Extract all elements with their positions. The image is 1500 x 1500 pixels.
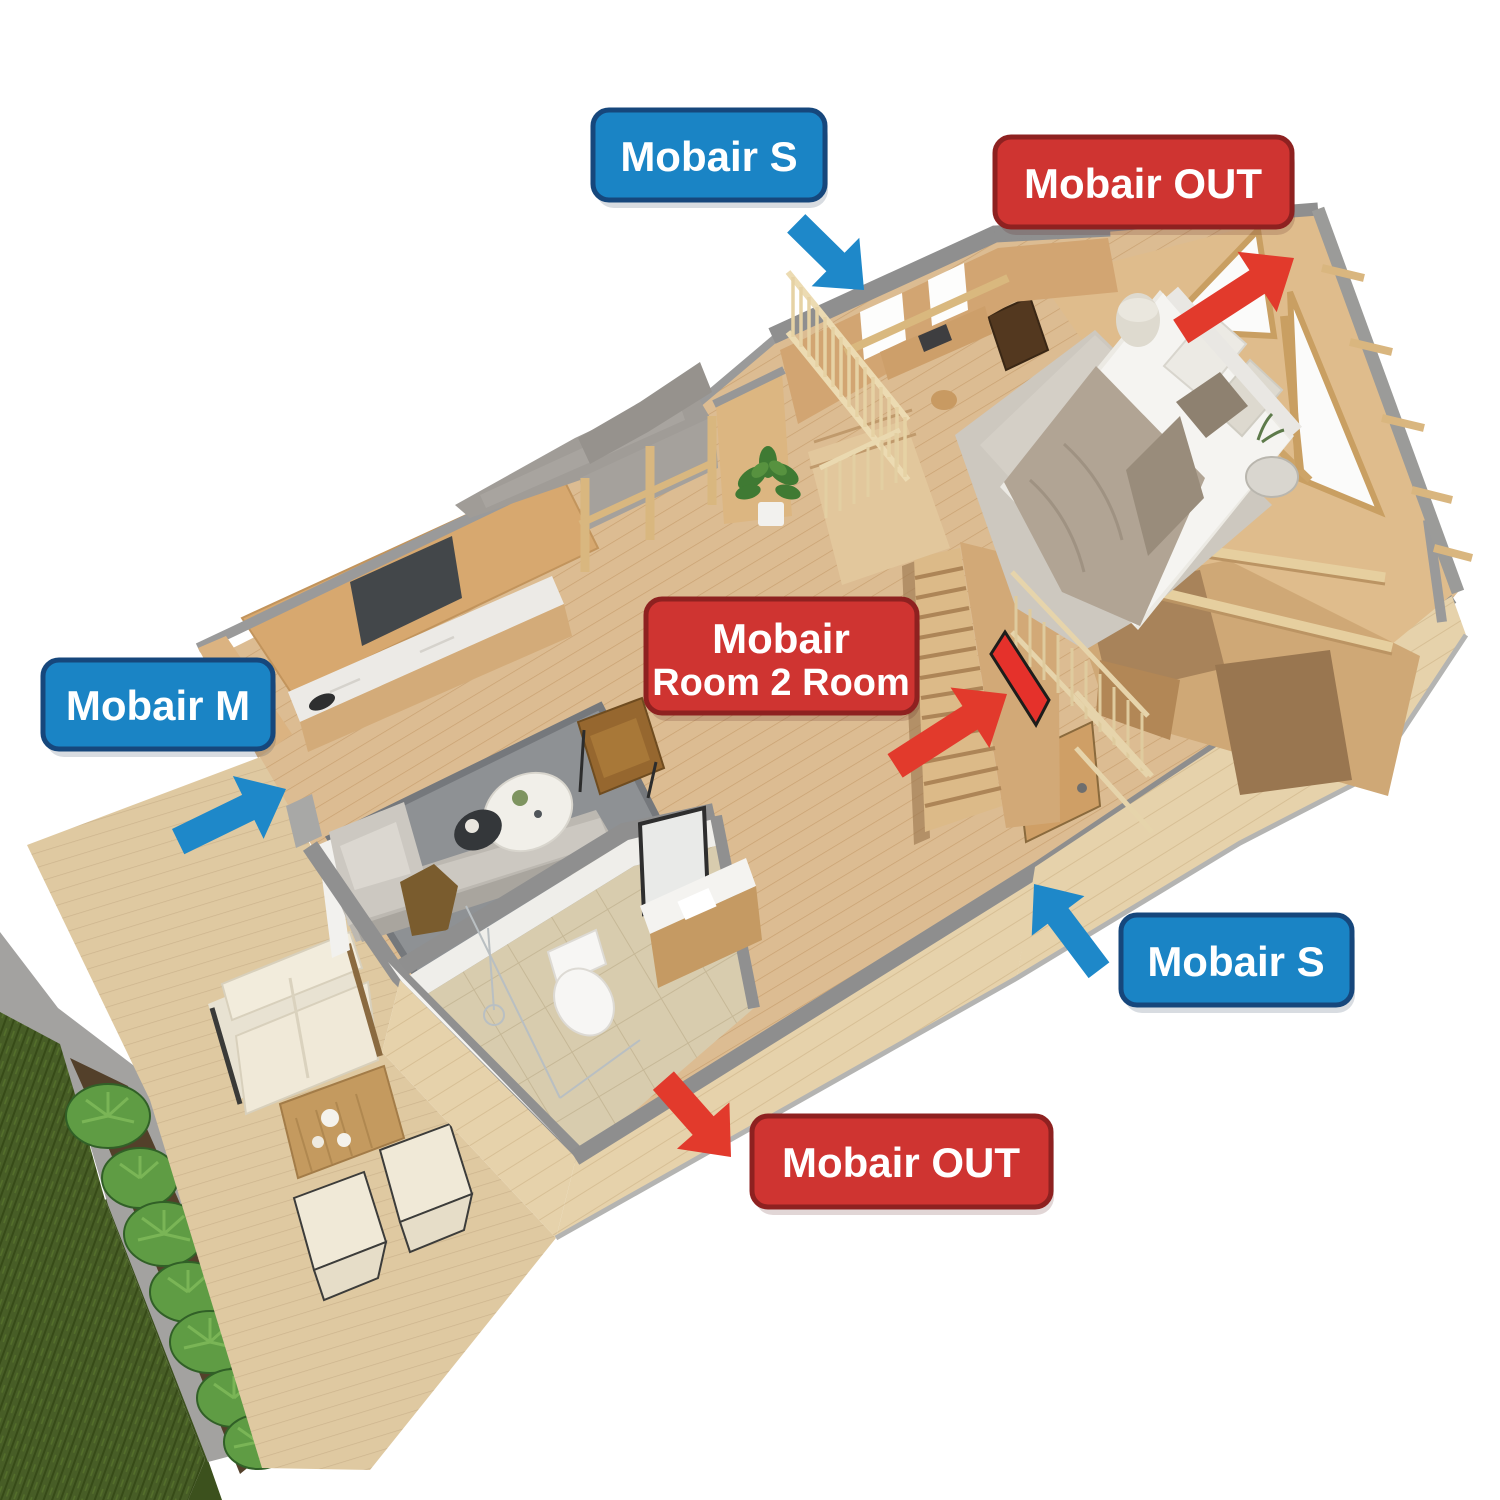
svg-text:Room 2 Room: Room 2 Room [652, 662, 910, 704]
svg-text:Mobair S: Mobair S [1147, 938, 1324, 985]
svg-text:Mobair OUT: Mobair OUT [1024, 160, 1262, 207]
svg-text:Mobair OUT: Mobair OUT [782, 1139, 1020, 1186]
svg-text:Mobair M: Mobair M [66, 682, 250, 729]
svg-text:Mobair S: Mobair S [620, 133, 797, 180]
svg-text:Mobair: Mobair [712, 615, 850, 662]
